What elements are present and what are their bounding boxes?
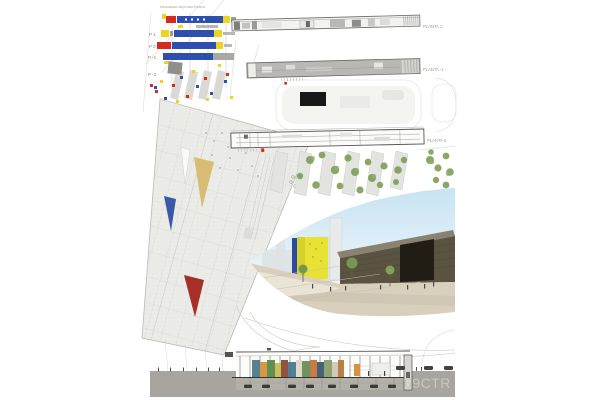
- program-bar-roof: [162, 14, 236, 28]
- project-code: 69CTR: [404, 375, 451, 391]
- section-basement: [236, 378, 408, 390]
- program-scatter-p-2: P -2: [148, 61, 233, 103]
- level-label-p1: P 1: [149, 32, 156, 37]
- level-label-p-1: P -1: [148, 55, 157, 60]
- plan-tick-comb: [281, 78, 302, 82]
- context-city-block: [276, 80, 456, 130]
- program-title: PROGRAMA ARQUITECTÓNICO: [160, 4, 206, 9]
- level-label-p0: P 0: [149, 44, 156, 49]
- program-bar-p-1: P -1: [148, 53, 234, 64]
- plan-label-planta-minus-1: PLANTA -1: [423, 67, 444, 72]
- section-collage: [252, 360, 344, 377]
- street-cars: [396, 366, 453, 370]
- plan-label-planta-1: PLANTA 1: [423, 24, 443, 29]
- floor-plan-planta-minus-1: [247, 58, 421, 85]
- floor-plan-planta-1: [232, 15, 420, 31]
- poster-board: PROGRAMA ARQUITECTÓNICO P 1: [0, 0, 600, 400]
- render-building-opening: [400, 239, 434, 282]
- plan-entry-marker: [284, 82, 287, 85]
- program-diagram: PROGRAMA ARQUITECTÓNICO P 1: [148, 4, 236, 103]
- program-bar-p0: P 0: [149, 42, 232, 49]
- plan-label-planta-0: PLANTA 0: [427, 138, 447, 143]
- plan0-entry-marker: [261, 148, 264, 152]
- level-label-p-2: P -2: [148, 72, 157, 77]
- poster-graphics: PROGRAMA ARQUITECTÓNICO P 1: [0, 0, 600, 400]
- program-bar-p1: P 1: [149, 30, 235, 37]
